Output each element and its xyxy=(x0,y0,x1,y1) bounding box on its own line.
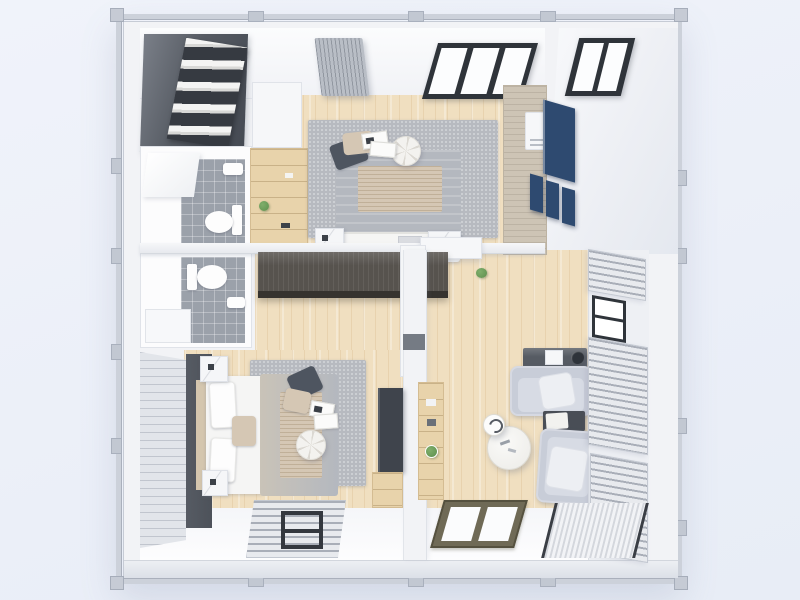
room-walk-in-closet xyxy=(140,34,248,152)
mat-frame-bar xyxy=(285,529,319,533)
shelf-unit-wood xyxy=(250,148,308,254)
wall-cabinet-white xyxy=(252,82,302,148)
window-pane xyxy=(441,507,481,541)
tv-panel xyxy=(378,388,403,472)
nightstand-item xyxy=(208,364,214,370)
low-wood-cabinet xyxy=(372,472,403,508)
frame-joint xyxy=(540,11,556,22)
round-pouf xyxy=(296,430,326,460)
frame-corner-bracket xyxy=(110,576,124,590)
shelf-item xyxy=(285,173,293,178)
shelf-item xyxy=(281,223,290,228)
sofa-cushion xyxy=(537,371,576,410)
room-bathroom-1 xyxy=(140,146,252,250)
potted-plant xyxy=(476,268,487,278)
frame-joint xyxy=(111,158,122,174)
toilet-tank xyxy=(232,205,242,235)
ceiling-ac-unit xyxy=(314,38,369,96)
planter-pot xyxy=(571,351,584,364)
toilet-bowl xyxy=(205,211,233,233)
wash-basin xyxy=(227,297,245,308)
bedroom2-window-wall xyxy=(140,352,186,548)
wash-basin xyxy=(223,163,243,175)
sofa-cushion xyxy=(545,445,590,493)
wall-shelf-unit xyxy=(418,382,444,500)
beige-square-pillow xyxy=(232,416,256,446)
navy-wall-panel xyxy=(543,99,575,182)
nightstand-item xyxy=(322,235,328,241)
small-appliance xyxy=(545,350,563,365)
divider-wall-cabinet xyxy=(403,334,425,350)
room-bathroom-2 xyxy=(140,250,252,348)
wardrobe-linen-shelves xyxy=(167,38,247,148)
frame-joint xyxy=(111,344,122,360)
marble-nightstand xyxy=(200,356,228,382)
table-decor xyxy=(508,448,517,453)
shelf-item xyxy=(426,399,436,406)
marble-cushion xyxy=(545,412,568,429)
fridge-vent xyxy=(530,144,543,146)
frame-joint xyxy=(111,438,122,454)
frame-joint xyxy=(248,11,264,22)
green-clock xyxy=(425,445,438,458)
house-interior xyxy=(124,22,678,578)
marble-nightstand xyxy=(202,470,228,496)
bedroom2-floor-mat xyxy=(246,500,346,558)
venetian-blind xyxy=(588,337,648,456)
floorplan-render xyxy=(0,0,800,600)
open-door-leaf xyxy=(142,153,200,197)
bed-throw-blanket xyxy=(358,166,442,212)
fridge-vent xyxy=(530,139,543,141)
bottom-wall-sill xyxy=(124,560,678,578)
toilet-tank xyxy=(187,264,197,290)
shelf-item xyxy=(427,419,436,426)
frame-corner-bracket xyxy=(674,8,688,22)
toilet-bowl xyxy=(197,265,227,289)
frame-corner-bracket xyxy=(674,576,688,590)
potted-plant xyxy=(259,201,269,211)
mat-dark-frame xyxy=(281,511,323,549)
shower-tray xyxy=(145,309,191,343)
right-wall-window xyxy=(592,295,626,343)
window-pane xyxy=(478,507,518,541)
frame-corner-bracket xyxy=(110,8,124,22)
frame-joint xyxy=(408,11,424,22)
desk-counter xyxy=(503,85,547,255)
bottom-window-olive xyxy=(430,500,528,548)
frame-joint xyxy=(111,248,122,264)
living-room-floor-mat xyxy=(541,503,649,558)
round-side-table xyxy=(483,414,505,436)
nightstand-item xyxy=(210,479,216,485)
table-decor xyxy=(500,439,510,445)
